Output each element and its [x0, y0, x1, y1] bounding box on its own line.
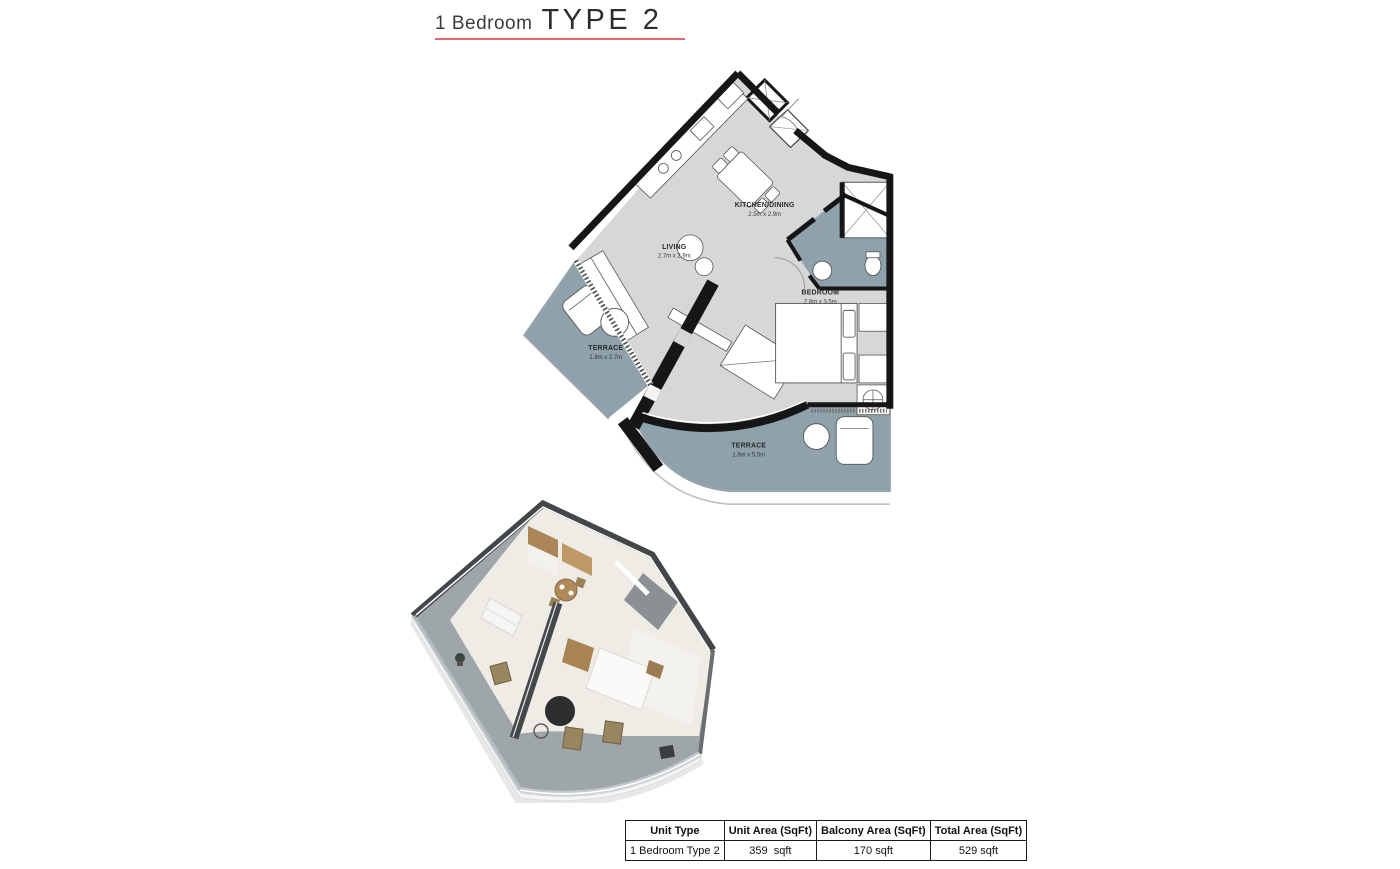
cell-unit-type: 1 Bedroom Type 2 — [626, 841, 725, 861]
label-living: LIVING — [662, 244, 686, 251]
fin-gap-2 — [649, 387, 655, 399]
area-table-data-row: 1 Bedroom Type 2 359 sqft 170 sqft 529 s… — [626, 841, 1027, 861]
side-table-small — [695, 258, 713, 276]
floorplan-3d — [408, 498, 718, 803]
label-terrace-main-dims: 1.8m x 5.5m — [732, 452, 765, 458]
firepit-3d — [659, 745, 675, 759]
label-bedroom: BEDROOM — [801, 289, 839, 296]
terrace-main-chair — [836, 417, 873, 465]
label-kitchen: KITCHEN/DINING — [735, 202, 795, 209]
cell-total-area: 529 sqft — [930, 841, 1026, 861]
round-table-dark-3d — [545, 696, 575, 726]
bed — [776, 303, 857, 382]
nightstand-top — [859, 303, 888, 331]
col-total-area: Total Area (SqFt) — [930, 821, 1026, 841]
label-bedroom-dims: 2.8m x 3.5m — [804, 299, 837, 305]
ac-unit — [857, 385, 890, 415]
shower — [842, 182, 890, 238]
col-balcony-area: Balcony Area (SqFt) — [817, 821, 931, 841]
label-terrace-main: TERRACE — [731, 442, 766, 449]
label-living-dims: 2.7m x 2.9m — [658, 254, 691, 260]
cell-balcony-area: 170 sqft — [817, 841, 931, 861]
page-title: 1 BedroomTYPE 2 — [435, 4, 662, 37]
cell-unit-area: 359 sqft — [724, 841, 816, 861]
area-table-header-row: Unit Type Unit Area (SqFt) Balcony Area … — [626, 821, 1027, 841]
col-unit-type: Unit Type — [626, 821, 725, 841]
bath-sink — [813, 261, 832, 280]
title-underline — [435, 38, 685, 40]
area-table: Unit Type Unit Area (SqFt) Balcony Area … — [625, 820, 1027, 861]
fin-gap-1 — [679, 331, 686, 344]
label-terrace-side-dims: 1.8m x 2.7m — [589, 355, 622, 361]
page-title-type: TYPE 2 — [541, 4, 662, 36]
toilet — [865, 252, 881, 276]
col-unit-area: Unit Area (SqFt) — [724, 821, 816, 841]
nightstand-bottom — [859, 355, 888, 383]
label-kitchen-dims: 2.5m x 2.9m — [748, 212, 781, 218]
floorplan-2d: KITCHEN/DINING 2.5m x 2.9m LIVING 2.7m x… — [520, 69, 915, 516]
label-terrace-side: TERRACE — [588, 345, 623, 352]
terrace-main-table — [803, 424, 829, 450]
page-title-prefix: 1 Bedroom — [435, 13, 532, 34]
